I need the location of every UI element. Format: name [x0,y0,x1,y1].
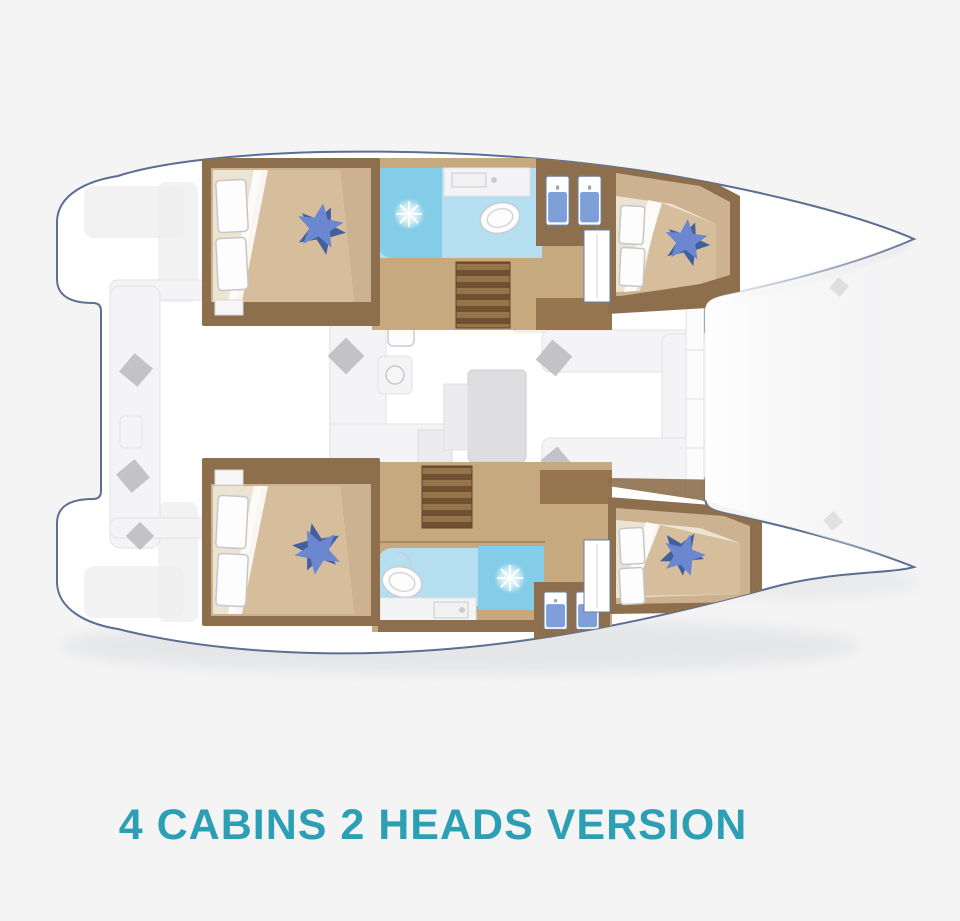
shower-spray-icon [393,198,425,230]
head-top [378,168,542,258]
corridor-cabinet [540,470,612,504]
shower-spray-icon [494,562,526,594]
pillow [619,205,645,244]
pillow [216,495,249,548]
corridor-cabinet [536,298,612,330]
pillow [619,527,645,564]
hull-bottom [202,458,762,640]
pillow [216,237,249,290]
pillow [216,553,249,606]
cabin-bottom-left [202,458,380,626]
wardrobe-doors-icon [544,592,567,629]
salon-front-windows [686,302,704,496]
stairs-icon [422,466,472,528]
floor-plan-page: 4 CABINS 2 HEADS VERSION [0,0,960,921]
wardrobe-doors-icon [546,176,569,225]
dinette-table [468,370,526,462]
nightstand [215,470,243,485]
hull-top [202,158,740,330]
pillow [619,247,645,286]
cabin-top-left [202,158,380,326]
cockpit-table [120,416,142,448]
wardrobe-doors-icon [578,176,601,225]
pillow [619,567,645,604]
pillow [216,179,249,232]
washbasin [452,173,486,187]
nightstand [215,300,243,315]
stairs-icon [456,262,510,328]
sink-icon [386,366,404,384]
plan-title: 4 CABINS 2 HEADS VERSION [0,801,866,850]
catamaran-floor-plan [0,0,960,921]
dinette-bench [444,384,468,450]
